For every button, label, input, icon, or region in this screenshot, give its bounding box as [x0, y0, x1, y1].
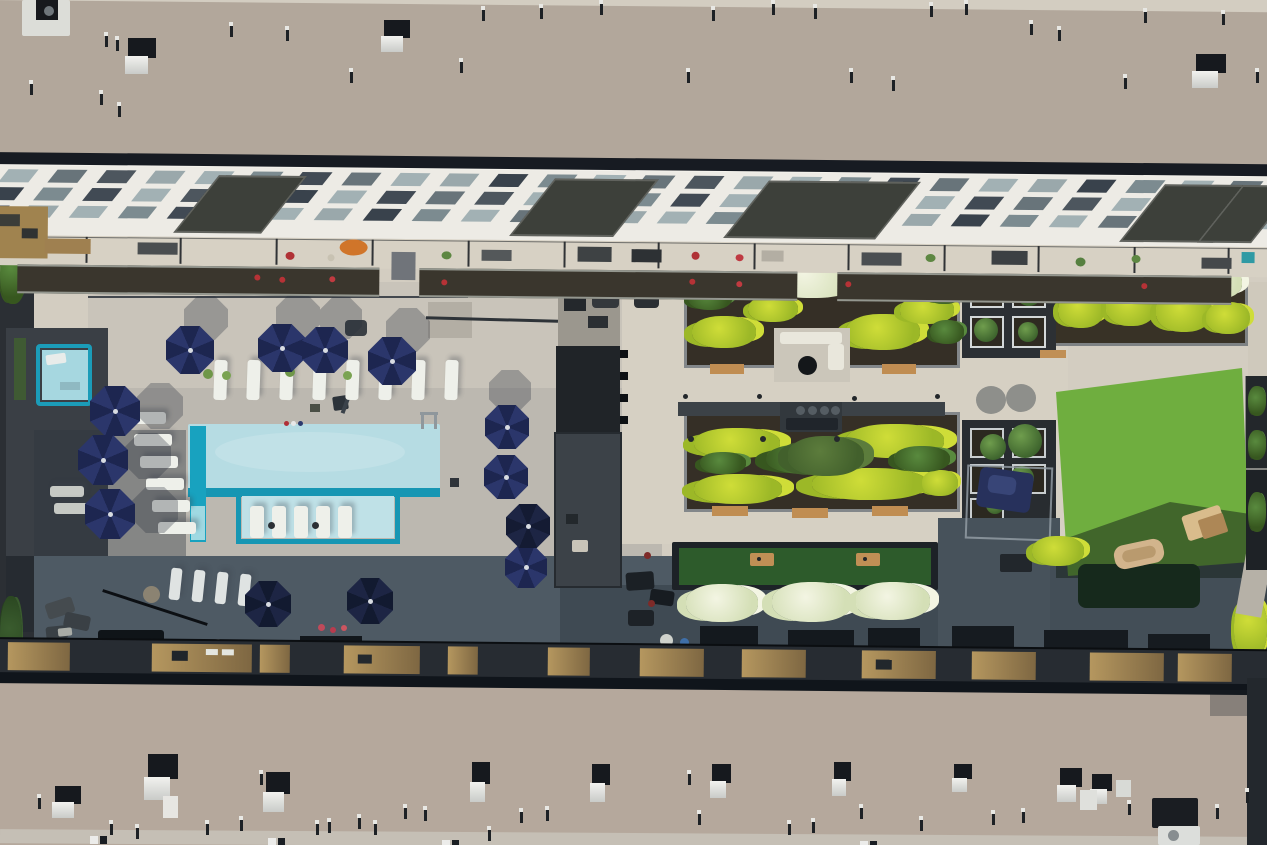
- roof-vent-dark: [55, 786, 81, 804]
- roof-pipe: [788, 822, 791, 835]
- roof-seam-vent-dark: [100, 836, 107, 844]
- lower-roof-right-dark: [1247, 678, 1267, 845]
- roof-vent: [592, 764, 610, 802]
- roof-pipe: [920, 818, 923, 831]
- roof-pipe-cap: [403, 804, 407, 808]
- aerial-rooftop-courtyard-photo: [0, 0, 1267, 845]
- roof-pipe-cap: [859, 804, 863, 808]
- roof-vent-dark: [472, 762, 490, 784]
- roof-seam-path: [0, 829, 1252, 845]
- roof-pipe: [240, 818, 243, 831]
- lower-roof-items-layer: [0, 0, 1267, 845]
- roof-vent-dark: [148, 754, 178, 779]
- roof-seam-vent-white: [268, 838, 276, 845]
- roof-vent: [472, 762, 490, 802]
- roof-pipe-cap: [919, 816, 923, 820]
- roof-pipe-cap: [519, 808, 523, 812]
- roof-vent: [1060, 768, 1082, 802]
- roof-pipe-cap: [37, 794, 41, 798]
- roof-pipe: [260, 772, 263, 785]
- roof-vent-face: [710, 781, 726, 798]
- roof-pipe-cap: [991, 810, 995, 814]
- roof-pipe-cap: [545, 806, 549, 810]
- roof-pipe: [374, 822, 377, 835]
- roof-pipe: [860, 806, 863, 819]
- roof-vent-face: [52, 802, 74, 818]
- roof-pipe: [328, 820, 331, 833]
- roof-pipe: [424, 808, 427, 821]
- roof-seam-vent-dark: [278, 838, 285, 845]
- roof-pipe-cap: [357, 814, 361, 818]
- roof-pipe-cap: [487, 826, 491, 830]
- roof-pipe: [688, 772, 691, 785]
- roof-vent-face: [1057, 785, 1076, 802]
- roof-vent-white: [1080, 790, 1097, 810]
- roof-pipe-cap: [1245, 788, 1249, 792]
- rooftop-ac-fan: [1168, 830, 1179, 841]
- roof-pipe-cap: [109, 820, 113, 824]
- roof-pipe-cap: [327, 818, 331, 822]
- roof-pipe-cap: [687, 770, 691, 774]
- roof-pipe-cap: [1021, 808, 1025, 812]
- roof-pipe-cap: [1127, 800, 1131, 804]
- roof-vent-face: [263, 792, 283, 812]
- roof-seam-vent-dark: [452, 840, 459, 845]
- roof-pipe: [110, 822, 113, 835]
- roof-seam-vent-white: [90, 836, 98, 844]
- roof-vent-face: [590, 783, 605, 802]
- roof-vent-face: [470, 782, 485, 802]
- roof-pipe: [1128, 802, 1131, 815]
- roof-pipe: [520, 810, 523, 823]
- roof-pipe-cap: [135, 824, 139, 828]
- roof-pipe-cap: [315, 820, 319, 824]
- roof-vent-face: [952, 778, 967, 792]
- rooftop-ac-white: [1158, 826, 1200, 845]
- roof-pipe: [546, 808, 549, 821]
- roof-pipe-cap: [811, 818, 815, 822]
- roof-pipe-cap: [697, 810, 701, 814]
- roof-seam-vent-dark: [870, 841, 877, 845]
- roof-pipe-cap: [373, 820, 377, 824]
- roof-pipe-cap: [787, 820, 791, 824]
- roof-vent: [712, 764, 731, 798]
- roof-pipe-cap: [239, 816, 243, 820]
- roof-vent-dark: [266, 772, 290, 794]
- roof-pipe: [1216, 806, 1219, 819]
- roof-pipe-cap: [259, 770, 263, 774]
- roof-pipe-cap: [1215, 804, 1219, 808]
- roof-vent: [266, 772, 290, 812]
- roof-pipe: [488, 828, 491, 841]
- roof-seam-vent-white: [442, 840, 450, 845]
- roof-seam-vent-white: [860, 841, 868, 845]
- roof-pipe: [316, 822, 319, 835]
- roof-vent-dark: [834, 762, 851, 781]
- roof-pipe: [1246, 790, 1249, 803]
- roof-vent: [834, 762, 851, 796]
- roof-vent-dark: [592, 764, 610, 785]
- roof-pipe: [404, 806, 407, 819]
- lower-roof-corner-shade: [1210, 690, 1247, 716]
- roof-vent-face: [832, 779, 846, 796]
- roof-vent-white: [1116, 780, 1131, 797]
- roof-vent: [148, 754, 178, 800]
- roof-pipe: [136, 826, 139, 839]
- roof-vent-dark: [712, 764, 731, 783]
- roof-vent: [954, 764, 972, 792]
- roof-pipe: [206, 822, 209, 835]
- roof-pipe: [1022, 810, 1025, 823]
- roof-pipe: [992, 812, 995, 825]
- roof-vent-white: [163, 796, 178, 818]
- rooftop-ac-dark: [1152, 798, 1198, 828]
- roof-vent: [55, 786, 81, 818]
- roof-pipe: [358, 816, 361, 829]
- roof-pipe-cap: [205, 820, 209, 824]
- roof-vent-dark: [1060, 768, 1082, 787]
- roof-pipe: [812, 820, 815, 833]
- roof-pipe-cap: [423, 806, 427, 810]
- roof-pipe: [698, 812, 701, 825]
- roof-pipe: [38, 796, 41, 809]
